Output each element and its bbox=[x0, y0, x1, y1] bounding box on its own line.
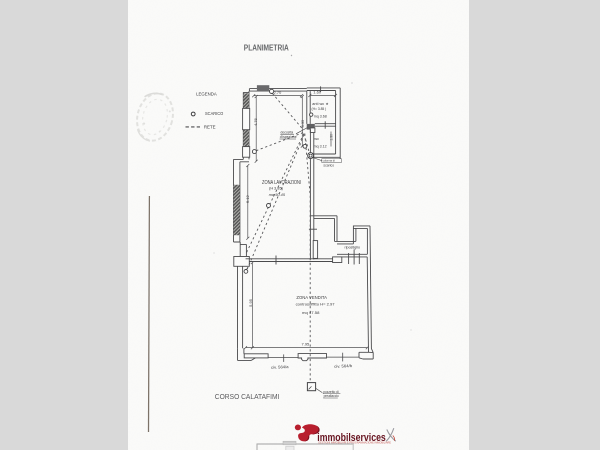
svg-text:LEGENDA: LEGENDA bbox=[196, 92, 217, 97]
svg-text:5.12: 5.12 bbox=[245, 194, 250, 203]
svg-text:civ. 564/b: civ. 564/b bbox=[334, 363, 352, 369]
svg-text:CORSO CALATAFIMI: CORSO CALATAFIMI bbox=[215, 392, 280, 401]
svg-text:ZONA VENDITA: ZONA VENDITA bbox=[296, 295, 327, 301]
svg-text:doccetta: doccetta bbox=[281, 131, 294, 135]
svg-text:1.60: 1.60 bbox=[313, 90, 322, 95]
svg-text:wc: wc bbox=[314, 137, 319, 141]
svg-text:mq 3.12: mq 3.12 bbox=[314, 144, 327, 148]
svg-text:1.30: 1.30 bbox=[330, 134, 334, 141]
svg-text:SCARICO: SCARICO bbox=[205, 111, 224, 116]
svg-text:pozzetto di: pozzetto di bbox=[323, 390, 339, 394]
svg-text:ZONA LAVORAZIONI: ZONA LAVORAZIONI bbox=[262, 180, 301, 186]
svg-text:RETE: RETE bbox=[204, 124, 216, 129]
svg-text:preallaccio: preallaccio bbox=[324, 394, 339, 398]
svg-text:colonna di: colonna di bbox=[323, 159, 336, 163]
svg-text:scarico: scarico bbox=[323, 164, 334, 168]
svg-text:mq 3.68: mq 3.68 bbox=[314, 115, 327, 119]
svg-text:anti wc: anti wc bbox=[312, 102, 324, 106]
svg-text:4.76: 4.76 bbox=[253, 117, 258, 126]
svg-text:mq 47.58: mq 47.58 bbox=[302, 310, 319, 315]
svg-text:ripostiglio: ripostiglio bbox=[345, 244, 361, 249]
svg-text:7.95: 7.95 bbox=[302, 342, 311, 347]
svg-text:d'ispezione: d'ispezione bbox=[280, 135, 297, 139]
svg-text:civ. 564/a: civ. 564/a bbox=[271, 364, 290, 370]
svg-text:mq 50.45: mq 50.45 bbox=[269, 192, 286, 197]
svg-text:5.95: 5.95 bbox=[248, 298, 253, 307]
svg-text:controsoffitto H= 2.97: controsoffitto H= 2.97 bbox=[296, 301, 335, 306]
svg-text:PLANIMETRIA: PLANIMETRIA bbox=[244, 44, 289, 53]
svg-text:(H= 3.85 ): (H= 3.85 ) bbox=[312, 107, 327, 111]
svg-text:(H 3.85): (H 3.85) bbox=[269, 186, 283, 190]
svg-text:2.70: 2.70 bbox=[273, 90, 282, 96]
